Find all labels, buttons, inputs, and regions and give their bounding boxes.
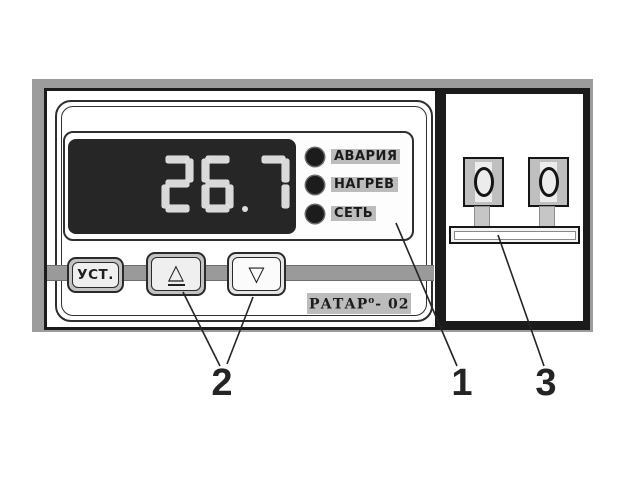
terminal-1	[463, 157, 504, 207]
power-led-label: СЕТЬ	[331, 206, 376, 221]
seven-segment-display	[68, 139, 296, 234]
callout-number-1: 1	[447, 364, 477, 402]
brand-label: РАТАРо- 02	[307, 293, 411, 314]
set-button-label: УСТ.	[77, 267, 114, 283]
heating-led-label: НАГРЕВ	[331, 177, 398, 192]
terminal-2	[528, 157, 569, 207]
up-arrow-underline	[168, 284, 185, 287]
display-value	[162, 156, 289, 212]
callout-number-3: 3	[531, 364, 561, 402]
alarm-led-icon	[306, 148, 324, 166]
up-button[interactable]: △	[146, 252, 206, 296]
terminal-busbar	[449, 226, 580, 244]
heating-led-icon	[306, 176, 324, 194]
up-arrow-icon: △	[168, 262, 184, 283]
terminal-2-stem	[539, 206, 555, 228]
diagram-canvas: АВАРИЯ НАГРЕВ СЕТЬ УСТ. △ ▽ РАТАРо- 02	[0, 0, 632, 482]
terminal-1-screw-icon	[474, 167, 494, 197]
power-led-icon	[306, 205, 324, 223]
set-button[interactable]: УСТ.	[67, 257, 124, 293]
down-button[interactable]: ▽	[227, 252, 286, 296]
callout-number-2: 2	[207, 364, 237, 402]
terminal-2-screw-icon	[539, 167, 559, 197]
down-arrow-icon: ▽	[248, 264, 264, 285]
terminal-busbar-slot	[454, 231, 576, 240]
terminal-1-stem	[474, 206, 490, 228]
terminal-section	[435, 88, 590, 330]
alarm-led-label: АВАРИЯ	[331, 149, 400, 164]
